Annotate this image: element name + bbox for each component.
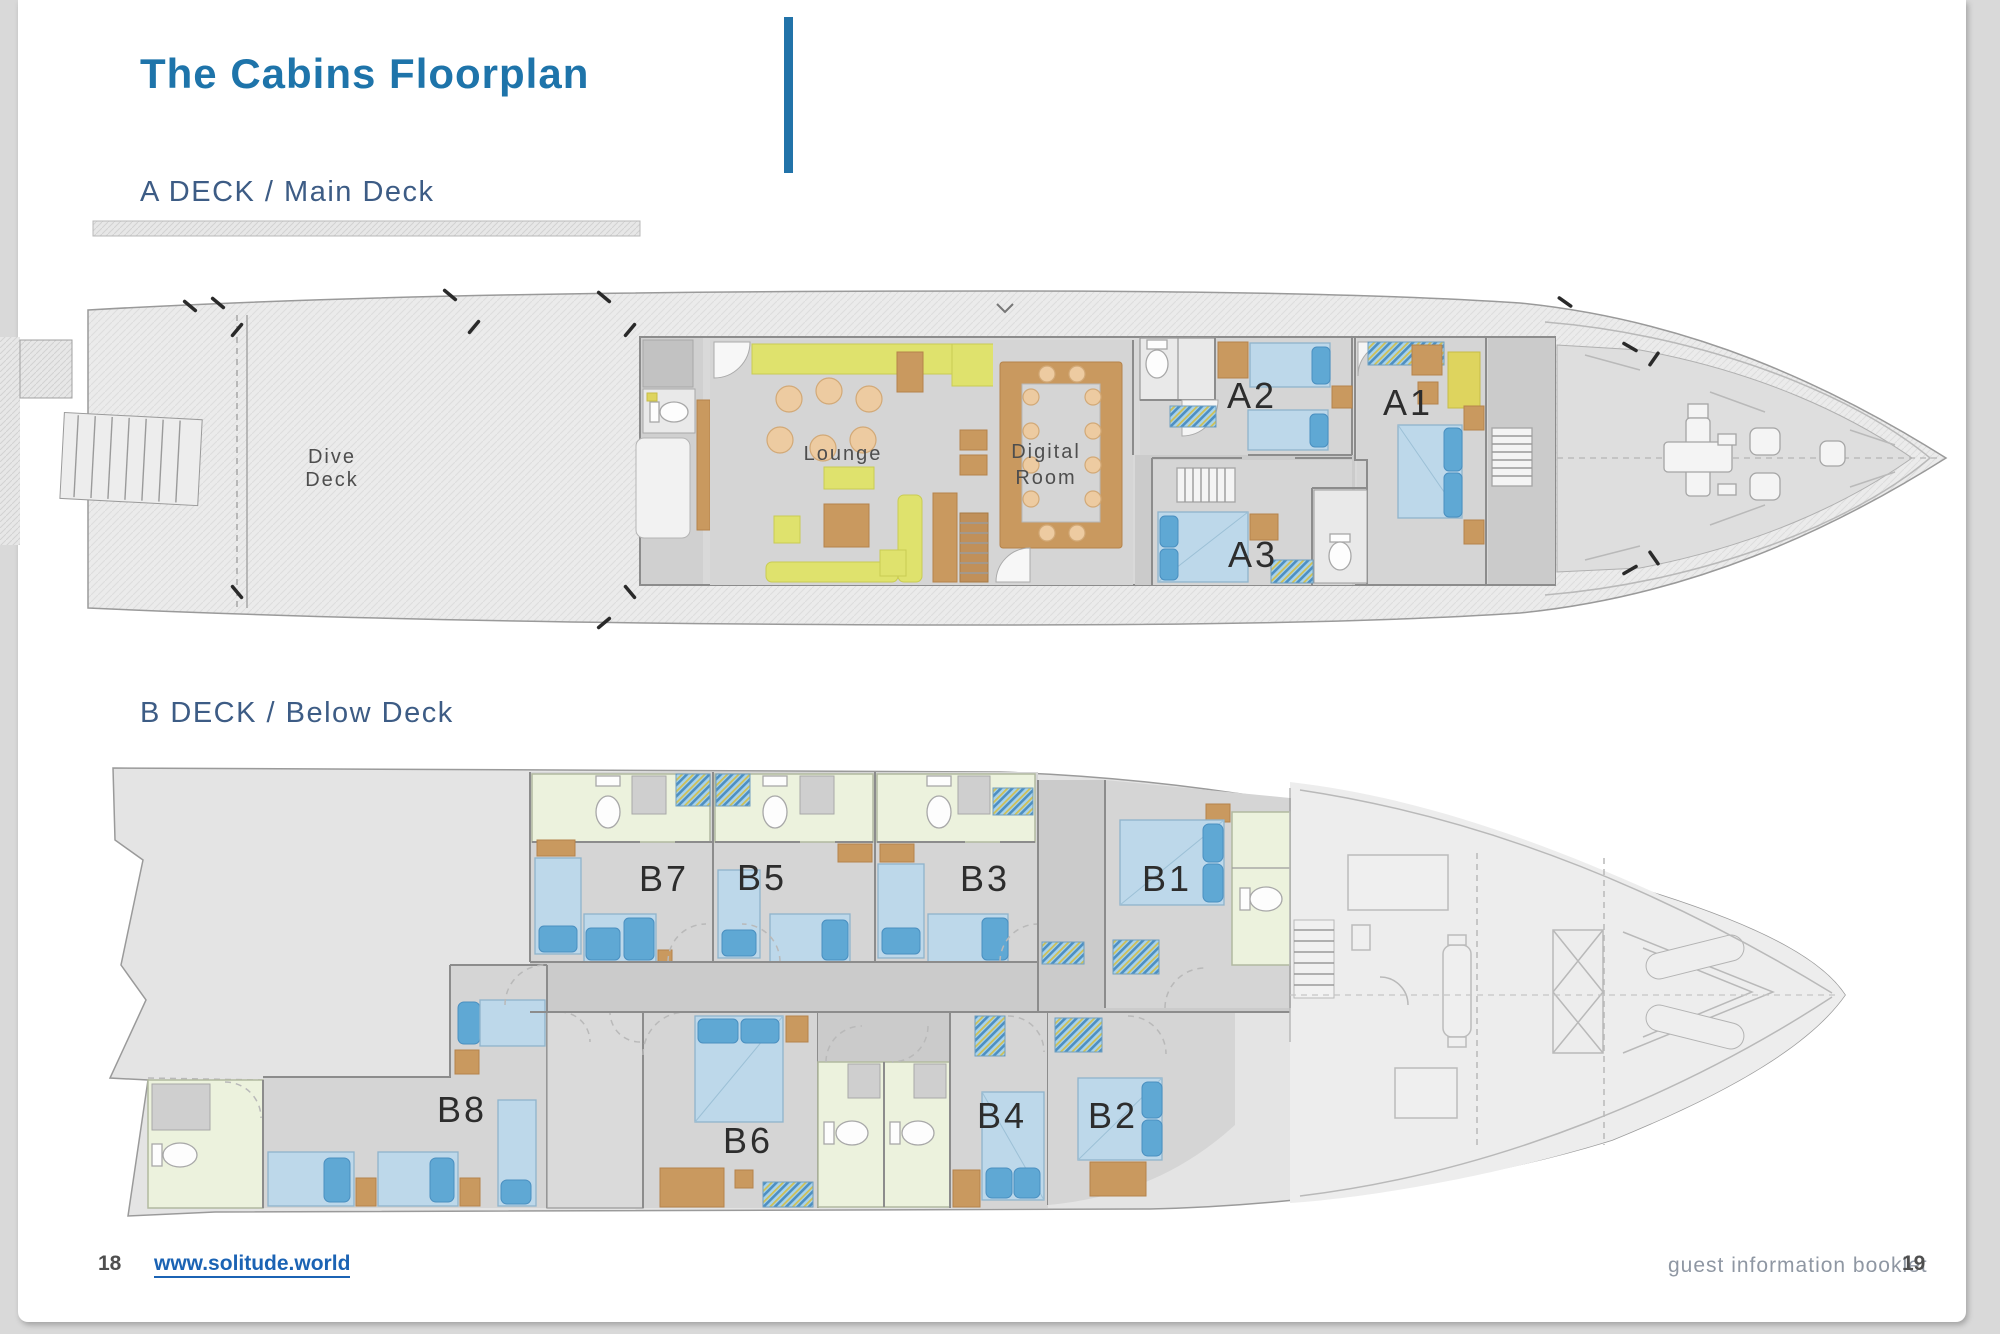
digital-room: Digital Room <box>993 340 1133 585</box>
forward-lobby <box>1488 338 1555 584</box>
bollard <box>1750 428 1780 455</box>
closet <box>1113 940 1159 974</box>
wardrobe <box>1448 352 1480 408</box>
toilet-icon <box>1240 887 1282 911</box>
cabin-b4-label: B4 <box>977 1095 1027 1136</box>
dive-deck-label-line2: Deck <box>305 469 359 491</box>
toilet-icon <box>1146 340 1168 378</box>
table <box>824 504 869 547</box>
toilet-icon <box>650 402 688 422</box>
toilet-icon <box>824 1121 868 1145</box>
cabin-a2: A2 <box>1140 338 1352 455</box>
stairs-icon <box>1492 428 1532 486</box>
stairs-icon <box>1177 468 1235 502</box>
digital-room-label-line1: Digital <box>1011 441 1081 463</box>
bollard <box>1820 441 1845 466</box>
cabin-b8-label: B8 <box>437 1089 487 1130</box>
lounge-label: Lounge <box>804 443 883 465</box>
closet <box>1055 1018 1102 1052</box>
closet <box>763 1182 813 1207</box>
closet <box>1170 406 1216 427</box>
desk <box>660 1168 724 1207</box>
closet <box>975 1016 1005 1056</box>
deck-b-plan: B7 B5 <box>110 768 1845 1216</box>
cabinet <box>933 493 957 582</box>
cabin-a1: A1 <box>1355 338 1486 585</box>
technical-room <box>547 1012 643 1208</box>
table <box>824 467 874 489</box>
closet <box>993 788 1033 815</box>
toilet-icon <box>890 1121 934 1145</box>
cabin-b3: B3 <box>875 772 1038 962</box>
cabin-a1-label: A1 <box>1383 382 1433 423</box>
stairs-icon <box>1294 920 1334 998</box>
closet <box>676 774 710 806</box>
table <box>774 516 800 543</box>
shared-bathrooms <box>818 1012 950 1207</box>
cabin-b3-label: B3 <box>960 858 1010 899</box>
cabin-a2-label: A2 <box>1227 375 1277 416</box>
gangway <box>60 413 202 506</box>
dive-deck-label-line1: Dive <box>308 446 356 468</box>
cabin-b5: B5 <box>713 772 875 962</box>
toilet-icon <box>596 776 620 828</box>
cabin-b6: B6 <box>643 1012 818 1208</box>
deck-a-plan: Dive Deck <box>0 221 1946 627</box>
floorplans-canvas: Dive Deck <box>0 0 2000 1334</box>
bench <box>636 438 690 538</box>
cabin-b6-label: B6 <box>723 1120 773 1161</box>
page-edge-structure <box>0 337 20 545</box>
shower <box>800 776 834 814</box>
crew-anteroom <box>636 338 710 584</box>
shelf <box>697 400 710 530</box>
toilet-icon <box>763 776 787 828</box>
shower <box>152 1084 210 1130</box>
desk <box>1412 345 1442 375</box>
toilet-icon <box>1329 534 1351 570</box>
bollard <box>1750 473 1780 500</box>
cabin-b7: B7 <box>530 772 713 962</box>
shower <box>632 776 666 814</box>
cabin-b1-label: B1 <box>1142 858 1192 899</box>
cabin-b5-label: B5 <box>737 857 787 898</box>
toilet-icon <box>927 776 951 828</box>
corridor-b-vertical <box>1038 780 1105 1012</box>
closet <box>716 774 750 806</box>
cabin-a3-label: A3 <box>1228 534 1278 575</box>
cabin-b2-label: B2 <box>1088 1095 1138 1136</box>
machinery-icon <box>1443 935 1471 1047</box>
swim-platform <box>20 340 72 398</box>
digital-room-label-line2: Room <box>1015 467 1076 489</box>
toilet-icon <box>152 1143 197 1167</box>
lounge: Lounge <box>710 340 1010 585</box>
aft-overhang-strip <box>93 221 640 236</box>
bed <box>480 1000 545 1046</box>
bow-area-b-overlay <box>1290 782 1845 1203</box>
shower <box>958 776 990 814</box>
cabin-b4: B4 <box>950 1012 1048 1208</box>
closet <box>1042 942 1084 964</box>
cabin-b7-label: B7 <box>639 858 689 899</box>
cabin-a3: A3 <box>1152 458 1367 585</box>
cabin-b1: B1 <box>1105 780 1290 1008</box>
